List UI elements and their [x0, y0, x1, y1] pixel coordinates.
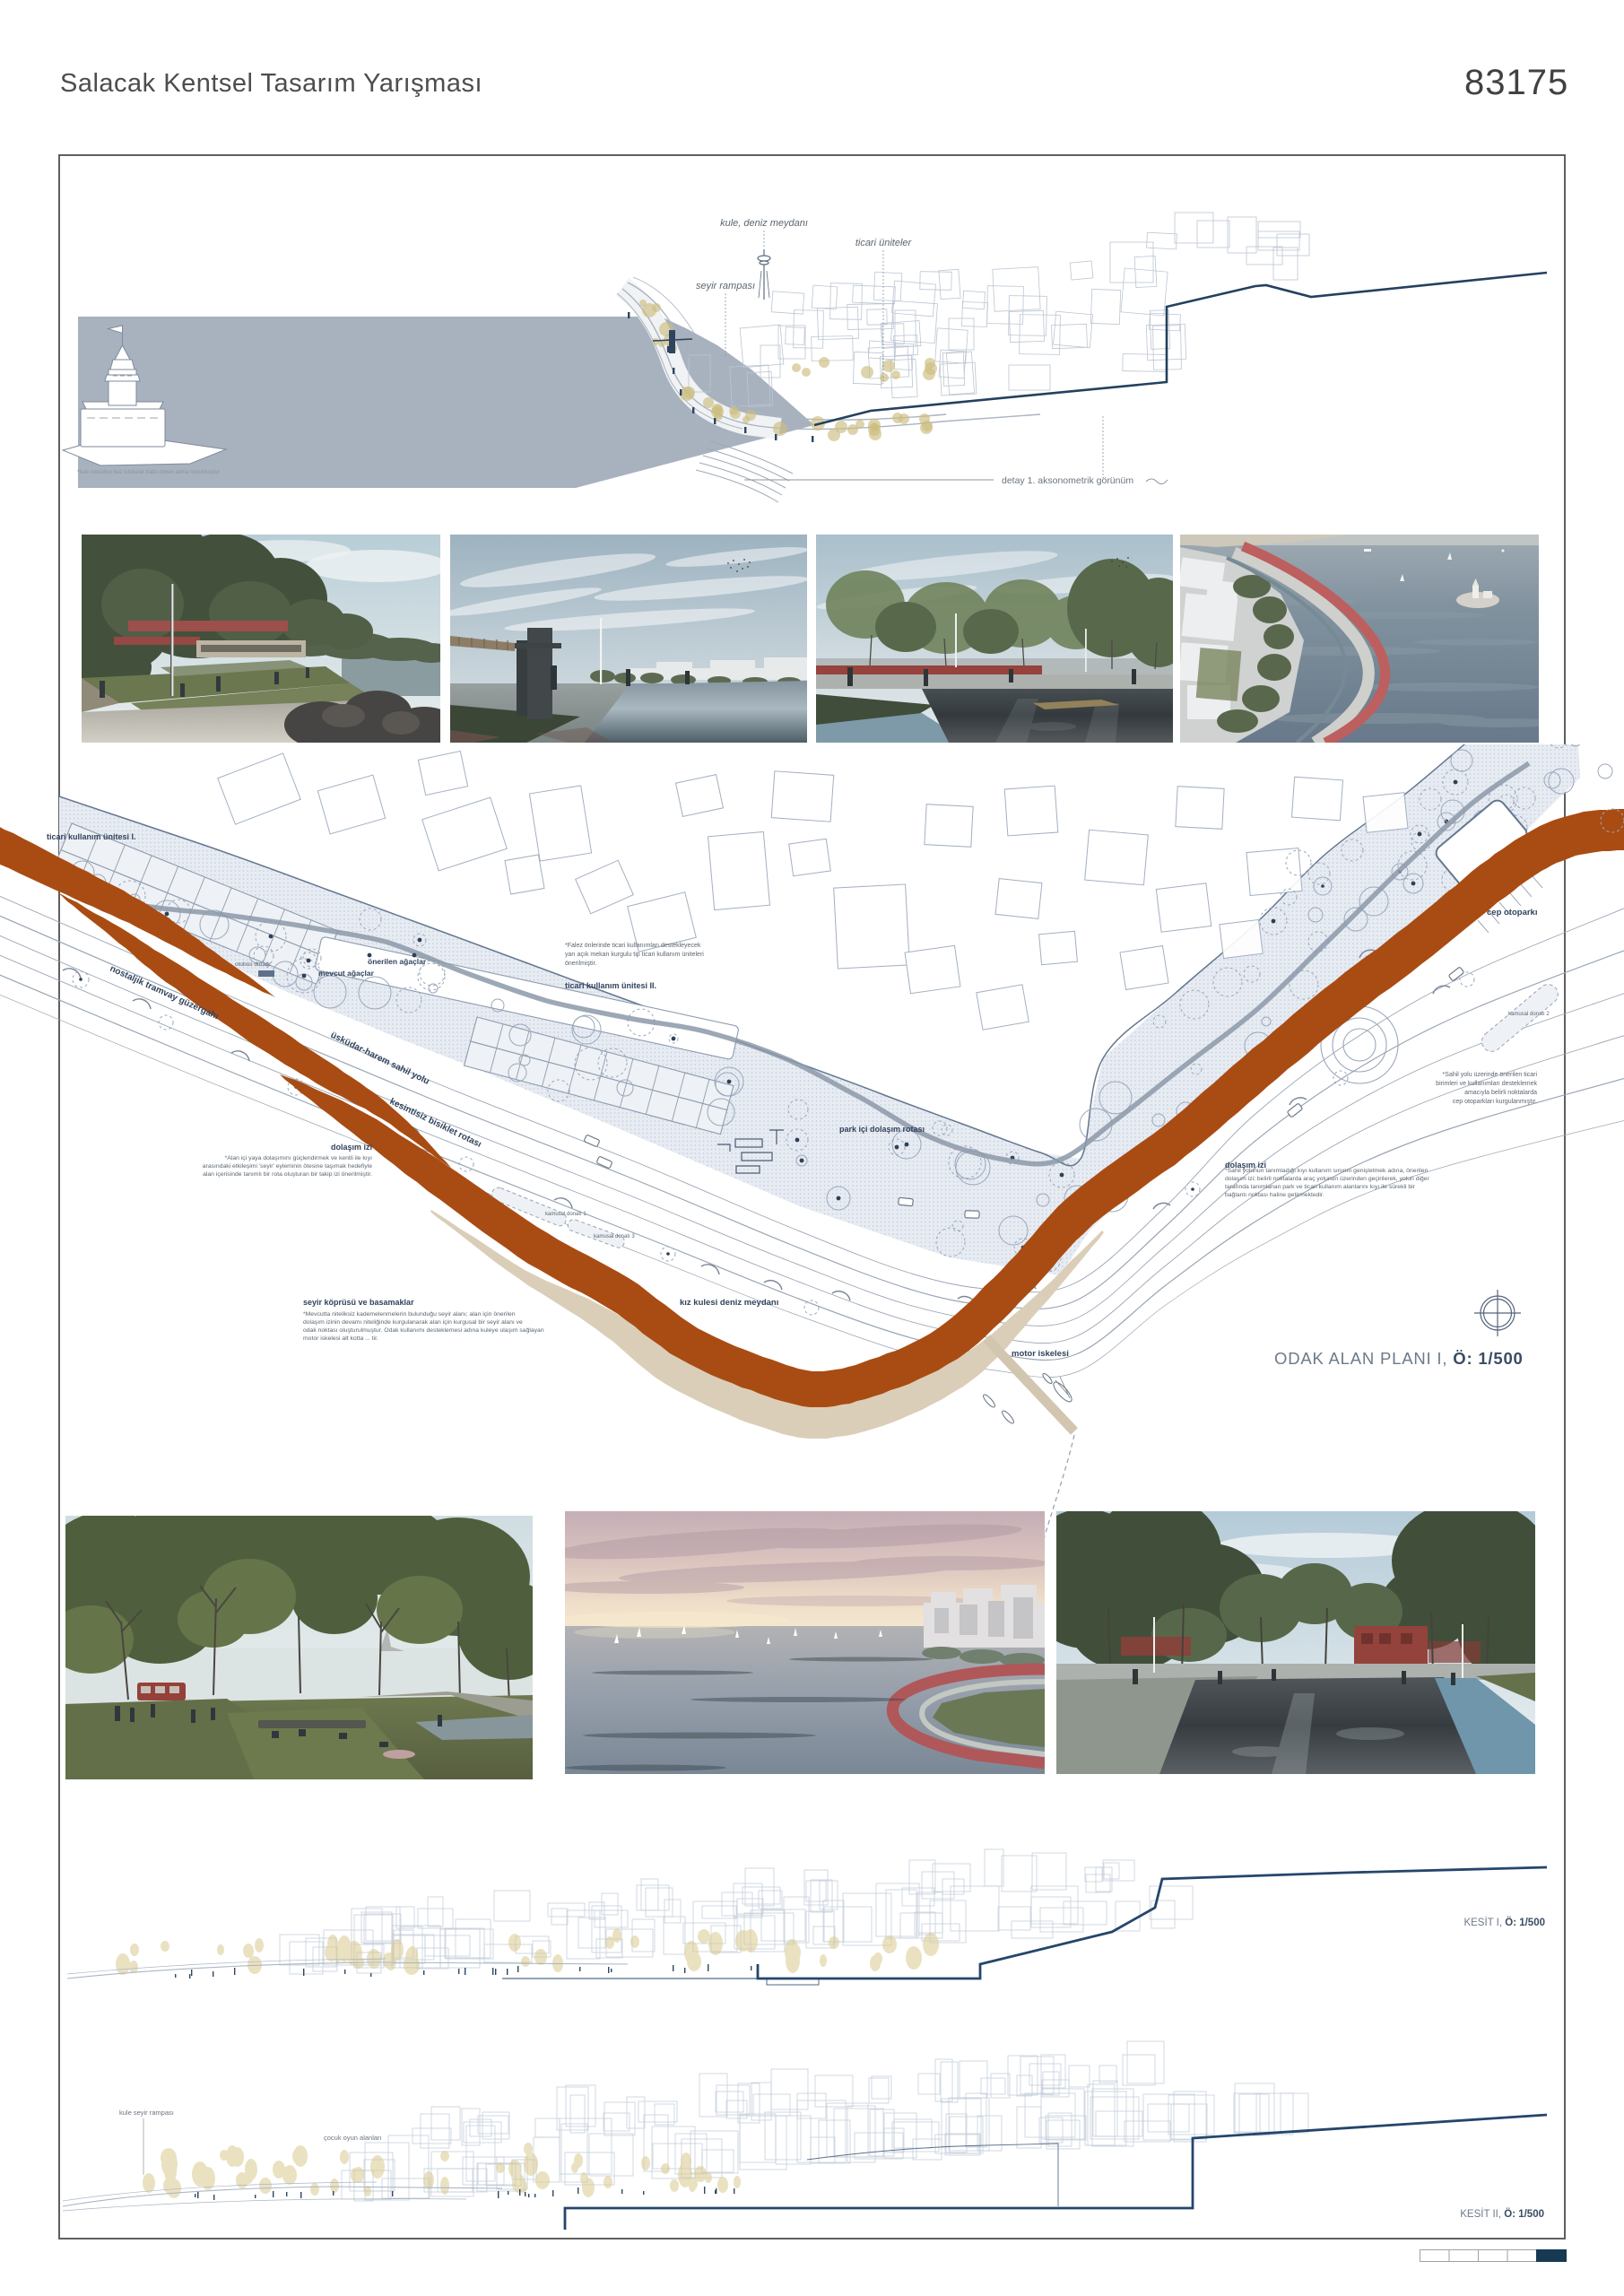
svg-text:seyir köprüsü ve basamaklar: seyir köprüsü ve basamaklar: [303, 1298, 414, 1307]
svg-text:dolaşım izi: dolaşım izi: [331, 1143, 372, 1152]
svg-text:detay 1. aksonometrik görünüm: detay 1. aksonometrik görünüm: [1002, 475, 1133, 486]
svg-text:kız kulesi deniz meydanı: kız kulesi deniz meydanı: [680, 1298, 778, 1308]
svg-text:önerilen ağaçlar: önerilen ağaçlar: [368, 957, 427, 966]
svg-text:*Mevcutta niteliksiz kademelen: *Mevcutta niteliksiz kademelenmelerin bu…: [303, 1311, 516, 1318]
svg-text:amacıyla belirli noktalarda: amacıyla belirli noktalarda: [1464, 1090, 1537, 1096]
svg-text:mevcut ağaçlar: mevcut ağaçlar: [318, 969, 375, 978]
svg-text:KESİT I, Ö: 1/500: KESİT I, Ö: 1/500: [1463, 1917, 1545, 1928]
svg-text:*kule mesafesi baz tutularak i: *kule mesafesi baz tutularak ifade etmek…: [77, 470, 220, 475]
svg-text:KESİT II, Ö: 1/500: KESİT II, Ö: 1/500: [1460, 2208, 1544, 2220]
svg-text:birimleri ve kullanımları dest: birimleri ve kullanımları desteklemek: [1436, 1081, 1537, 1087]
svg-text:*Falez önlerinde ticari kullan: *Falez önlerinde ticari kullanımları des…: [565, 943, 701, 949]
svg-text:kule, deniz meydanı: kule, deniz meydanı: [720, 218, 808, 229]
svg-text:ODAK ALAN PLANI I, Ö: 1/500: ODAK ALAN PLANI I, Ö: 1/500: [1274, 1349, 1524, 1368]
svg-text:çocuk oyun alanları: çocuk oyun alanları: [324, 2134, 382, 2142]
svg-text:motor iskelesi: motor iskelesi: [1012, 1349, 1069, 1359]
svg-text:ticari üniteler: ticari üniteler: [855, 238, 913, 248]
svg-text:kamusal donatı 2: kamusal donatı 2: [1508, 1012, 1550, 1017]
svg-text:motor iskelesi alt kotta ... t: motor iskelesi alt kotta ... tir.: [303, 1335, 378, 1342]
svg-text:önerilmiştir.: önerilmiştir.: [565, 961, 596, 967]
svg-text:seyir rampası: seyir rampası: [696, 281, 755, 291]
svg-text:yarı açık mekan kurgulu tip ti: yarı açık mekan kurgulu tip ticari kulla…: [565, 952, 704, 958]
svg-text:ticari kullanım ünitesi II.: ticari kullanım ünitesi II.: [565, 981, 656, 990]
svg-text:otobüs durağı: otobüs durağı: [235, 961, 271, 968]
svg-text:park içi dolaşım rotası: park içi dolaşım rotası: [839, 1125, 925, 1134]
svg-text:ticari kullanım ünitesi I.: ticari kullanım ünitesi I.: [47, 832, 136, 841]
svg-text:*Sahil yolu üzerinde önerilen: *Sahil yolu üzerinde önerilen ticari: [1443, 1072, 1538, 1078]
svg-text:tarafında tanımlanan park ve t: tarafında tanımlanan park ve ticari kull…: [1225, 1184, 1416, 1190]
svg-text:kamusal donatı 1: kamusal donatı 1: [545, 1212, 586, 1217]
svg-text:bağlantı noktası haline getirm: bağlantı noktası haline getirmektedir.: [1225, 1192, 1324, 1198]
svg-text:kamusal donatı 3: kamusal donatı 3: [594, 1234, 635, 1239]
svg-text:cep otoparkları kurgulanmıştır: cep otoparkları kurgulanmıştır.: [1453, 1099, 1537, 1105]
svg-text:odak noktası oluşturulmuştur.: odak noktası oluşturulmuştur. Odak kulla…: [303, 1327, 544, 1334]
svg-text:kule seyir rampası: kule seyir rampası: [119, 2109, 174, 2117]
svg-text:arasındaki etkileşimi 'seyir': arasındaki etkileşimi 'seyir' eyleminin …: [203, 1163, 372, 1170]
svg-text:alan içerisinde tanımlı bir ro: alan içerisinde tanımlı bir rota oluştur…: [203, 1171, 372, 1178]
svg-text:cep otoparkı: cep otoparkı: [1487, 908, 1538, 918]
svg-text:dolaşım izi; belirli noktalard: dolaşım izi; belirli noktalarda araç yol…: [1225, 1176, 1430, 1182]
svg-text:dolaşım izinin devamı niteliği: dolaşım izinin devamı niteliğinde kurgul…: [303, 1319, 523, 1326]
svg-text:*Sahil yolunun tanımladığı kıy: *Sahil yolunun tanımladığı kıyı kullanım…: [1225, 1168, 1429, 1174]
svg-text:*Alan içi yaya dolaşımını güçl: *Alan içi yaya dolaşımını güçlendirmek v…: [225, 1155, 372, 1161]
